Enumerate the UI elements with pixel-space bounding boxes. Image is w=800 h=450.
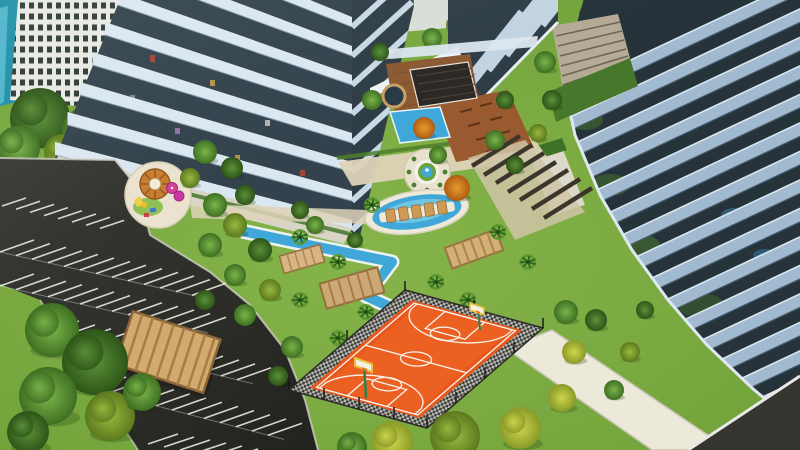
light-overlay	[0, 0, 800, 450]
aerial-render	[0, 0, 800, 450]
scene-canvas	[0, 0, 800, 450]
